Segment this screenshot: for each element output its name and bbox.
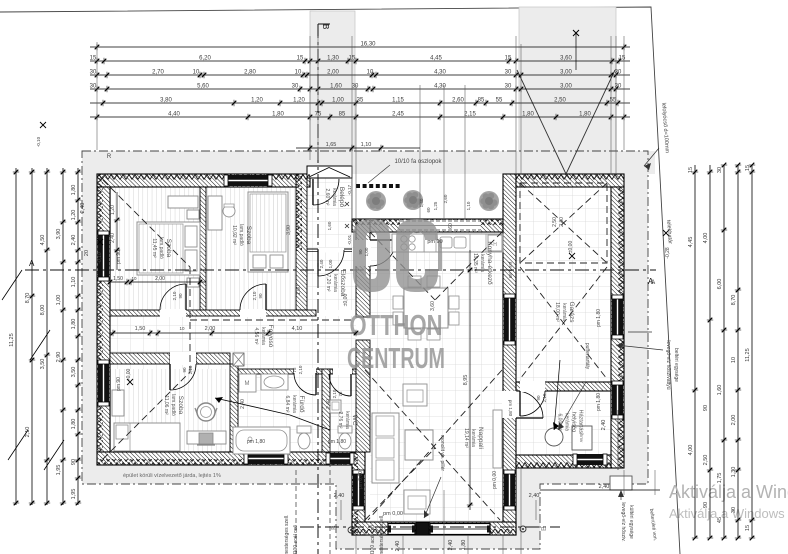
svg-text:2,40: 2,40 — [395, 541, 401, 552]
svg-text:10: 10 — [179, 326, 185, 331]
svg-text:3,90: 3,90 — [286, 225, 292, 235]
svg-text:1,60: 1,60 — [327, 221, 332, 230]
svg-text:10,92 m²: 10,92 m² — [231, 225, 237, 245]
svg-text:30: 30 — [505, 84, 512, 90]
svg-text:2,40: 2,40 — [110, 233, 116, 243]
svg-text:18,00 m²: 18,00 m² — [554, 302, 560, 322]
svg-text:pm 0,00: pm 0,00 — [492, 471, 498, 489]
svg-text:2,10: 2,10 — [298, 365, 303, 374]
svg-text:1,25: 1,25 — [433, 201, 438, 210]
svg-text:1,10: 1,10 — [71, 277, 77, 288]
svg-text:-0,10: -0,10 — [97, 252, 103, 264]
svg-text:2,40: 2,40 — [334, 493, 345, 499]
svg-text:4,30: 4,30 — [434, 84, 446, 90]
svg-text:2,10: 2,10 — [332, 389, 337, 398]
svg-text:4,30: 4,30 — [434, 70, 446, 76]
svg-text:3,60: 3,60 — [560, 56, 572, 62]
svg-text:90: 90 — [71, 459, 77, 465]
svg-text:3,90: 3,90 — [56, 229, 62, 240]
svg-text:lefolyócső d=100mm: lefolyócső d=100mm — [660, 102, 670, 153]
svg-text:2,10: 2,10 — [172, 291, 177, 300]
svg-text:30: 30 — [90, 84, 97, 90]
svg-text:±0,00: ±0,00 — [568, 241, 574, 254]
svg-text:1,00: 1,00 — [332, 98, 344, 104]
svg-text:1,20: 1,20 — [293, 98, 305, 104]
svg-text:90: 90 — [358, 249, 363, 255]
svg-text:pm 1,80: pm 1,80 — [328, 439, 346, 445]
svg-text:kerámia: kerámia — [470, 429, 476, 447]
svg-text:lam.padló: lam.padló — [170, 394, 176, 416]
svg-text:levegő-víz hősziv.: levegő-víz hősziv. — [620, 502, 626, 541]
svg-text:1,00: 1,00 — [364, 247, 369, 256]
svg-text:1,20: 1,20 — [251, 98, 263, 104]
svg-text:15: 15 — [349, 56, 356, 62]
svg-text:M: M — [245, 381, 250, 387]
svg-text:1,60: 1,60 — [296, 285, 302, 295]
svg-text:30: 30 — [90, 70, 97, 76]
svg-text:Belépő: Belépő — [338, 187, 345, 208]
svg-text:beltéri egysége: beltéri egysége — [673, 348, 679, 382]
svg-text:2,60: 2,60 — [452, 98, 464, 104]
svg-text:2,10: 2,10 — [25, 427, 31, 438]
svg-text:4,56 m²: 4,56 m² — [253, 328, 259, 345]
svg-text:30: 30 — [352, 84, 359, 90]
svg-text:30: 30 — [505, 70, 512, 76]
svg-text:75: 75 — [338, 391, 343, 397]
svg-text:55: 55 — [496, 98, 503, 104]
svg-text:3,00: 3,00 — [560, 84, 572, 90]
svg-text:11,06 m²: 11,06 m² — [163, 395, 169, 415]
svg-text:2,60: 2,60 — [443, 194, 448, 203]
svg-text:2,40: 2,40 — [319, 259, 324, 268]
svg-text:kerámia: kerámia — [344, 411, 350, 429]
svg-text:Nappali: Nappali — [477, 427, 484, 449]
svg-text:A: A — [651, 279, 656, 286]
svg-text:B: B — [331, 525, 338, 530]
svg-text:kerámia: kerámia — [561, 303, 567, 321]
svg-text:-0,10: -0,10 — [36, 136, 41, 147]
svg-text:helyiség: helyiség — [571, 412, 577, 432]
svg-text:35: 35 — [357, 98, 364, 104]
svg-text:1,00: 1,00 — [328, 259, 333, 268]
svg-text:2,40: 2,40 — [529, 493, 540, 499]
svg-text:2,00: 2,00 — [155, 276, 165, 282]
svg-text:pm 1,80: pm 1,80 — [596, 309, 602, 327]
svg-text:1,30: 1,30 — [731, 467, 737, 478]
svg-text:Háztartási: Háztartási — [578, 410, 584, 435]
svg-text:1,80: 1,80 — [461, 540, 467, 551]
svg-text:6,00: 6,00 — [717, 279, 723, 290]
svg-text:15: 15 — [505, 56, 512, 62]
svg-text:1,50: 1,50 — [135, 326, 146, 332]
svg-text:Szoba: Szoba — [245, 226, 252, 245]
svg-text:90: 90 — [258, 293, 263, 299]
svg-text:2,40: 2,40 — [326, 399, 332, 409]
svg-text:kerámia: kerámia — [331, 188, 337, 206]
svg-text:4,45: 4,45 — [430, 56, 442, 62]
svg-text:1,60: 1,60 — [330, 84, 342, 90]
svg-text:lam.padló: lam.padló — [238, 224, 244, 246]
svg-text:20: 20 — [84, 250, 90, 256]
svg-text:kerámia: kerámia — [479, 254, 485, 272]
svg-text:15: 15 — [619, 56, 626, 62]
svg-text:2,15: 2,15 — [464, 112, 476, 118]
svg-text:2,50: 2,50 — [703, 455, 709, 466]
svg-text:2,10: 2,10 — [542, 393, 547, 402]
svg-text:pm 1,80: pm 1,80 — [247, 439, 265, 445]
svg-text:4,00: 4,00 — [688, 445, 694, 456]
svg-text:30: 30 — [731, 507, 737, 513]
svg-text:1,20: 1,20 — [110, 205, 116, 215]
svg-text:CENTRUM: CENTRUM — [347, 343, 445, 375]
svg-text:6,20: 6,20 — [199, 56, 211, 62]
svg-text:4,50: 4,50 — [40, 235, 46, 246]
svg-text:11,45 m²: 11,45 m² — [151, 238, 157, 258]
svg-text:19,14 m²: 19,14 m² — [463, 428, 469, 448]
svg-text:1,80: 1,80 — [579, 112, 591, 118]
svg-text:Aktiválja a Windows rendszert: Aktiválja a Windows rendszert — [669, 506, 788, 521]
svg-text:2,40: 2,40 — [71, 235, 77, 246]
svg-text:3,60: 3,60 — [430, 301, 436, 311]
svg-text:1,60: 1,60 — [717, 385, 723, 396]
svg-text:1,00: 1,00 — [56, 295, 62, 306]
svg-text:85: 85 — [478, 98, 485, 104]
svg-text:10: 10 — [193, 70, 200, 76]
svg-text:pm 1,80: pm 1,80 — [596, 393, 602, 411]
svg-text:Szoba: Szoba — [177, 396, 184, 415]
svg-text:B: B — [541, 526, 548, 531]
svg-text:1,80: 1,80 — [71, 419, 77, 430]
svg-text:4,40: 4,40 — [168, 112, 180, 118]
svg-text:2,80: 2,80 — [244, 70, 256, 76]
svg-text:pm 0,00: pm 0,00 — [383, 511, 403, 517]
svg-text:90: 90 — [182, 367, 187, 373]
svg-text:2,00: 2,00 — [731, 415, 737, 426]
svg-text:11,25: 11,25 — [9, 333, 15, 346]
svg-text:4,45: 4,45 — [688, 237, 694, 248]
svg-text:2,40: 2,40 — [601, 420, 607, 431]
svg-text:WC: WC — [351, 415, 358, 426]
svg-text:pm 0,00: pm 0,00 — [358, 471, 364, 489]
svg-text:10: 10 — [731, 357, 737, 363]
svg-text:2,40: 2,40 — [80, 203, 86, 214]
svg-text:1,10: 1,10 — [361, 142, 372, 148]
svg-text:1,10: 1,10 — [466, 201, 471, 210]
svg-text:-0,28: -0,28 — [665, 247, 671, 259]
svg-text:85: 85 — [339, 112, 346, 118]
svg-text:Szoba: Szoba — [165, 239, 172, 258]
svg-text:3,00: 3,00 — [560, 70, 572, 76]
svg-text:puffertartály: puffertartály — [584, 343, 590, 370]
svg-text:15: 15 — [745, 525, 751, 531]
svg-text:10: 10 — [131, 276, 137, 281]
svg-text:1,65: 1,65 — [326, 142, 337, 148]
svg-text:pm 90: pm 90 — [427, 239, 442, 245]
svg-text:2,10: 2,10 — [188, 365, 193, 374]
svg-text:10: 10 — [367, 70, 374, 76]
svg-text:2,40: 2,40 — [559, 217, 565, 227]
svg-text:Fürdő: Fürdő — [298, 396, 305, 413]
svg-text:90: 90 — [703, 405, 709, 411]
svg-text:2,60 m²: 2,60 m² — [324, 189, 330, 206]
svg-text:8,70: 8,70 — [25, 293, 31, 304]
svg-text:Előszoba: Előszoba — [339, 270, 346, 297]
svg-text:15: 15 — [688, 167, 694, 173]
svg-text:7,20 m²: 7,20 m² — [325, 275, 331, 292]
svg-text:2,10: 2,10 — [252, 291, 257, 300]
svg-text:6,84 m²: 6,84 m² — [284, 396, 290, 413]
svg-text:mesterséges szell.: mesterséges szell. — [379, 515, 385, 554]
svg-text:2,50: 2,50 — [552, 217, 558, 227]
svg-text:75: 75 — [315, 112, 322, 118]
svg-text:75: 75 — [292, 367, 297, 373]
svg-text:lam.padló: lam.padló — [158, 237, 164, 259]
svg-text:1,80: 1,80 — [71, 319, 77, 330]
svg-text:4,10: 4,10 — [292, 326, 303, 332]
svg-text:hmv: hmv — [579, 434, 584, 443]
svg-text:-0,01: -0,01 — [347, 234, 352, 245]
svg-text:1,20: 1,20 — [71, 210, 77, 221]
svg-text:8,70: 8,70 — [731, 295, 737, 306]
svg-text:1,80: 1,80 — [71, 185, 77, 196]
svg-text:8,00: 8,00 — [40, 305, 46, 316]
svg-text:telekhatár: telekhatár — [665, 220, 673, 245]
svg-text:levegő-víz hőszivattyú: levegő-víz hőszivattyú — [665, 340, 671, 389]
svg-text:2,00: 2,00 — [327, 70, 339, 76]
svg-text:1,15: 1,15 — [392, 98, 404, 104]
svg-text:B: B — [321, 24, 330, 29]
svg-text:10: 10 — [295, 70, 302, 76]
svg-text:mesterséges szell.: mesterséges szell. — [284, 515, 290, 554]
svg-text:±0,00: ±0,00 — [343, 294, 349, 307]
svg-text:Aktiválja a Windows: Aktiválja a Windows — [669, 482, 788, 502]
svg-text:3,80: 3,80 — [160, 98, 172, 104]
svg-text:60: 60 — [448, 223, 454, 229]
svg-text:épület körüli vízelvezető járd: épület körüli vízelvezető járda, lejtés … — [123, 473, 221, 479]
svg-text:1,80: 1,80 — [522, 112, 534, 118]
svg-text:90: 90 — [536, 395, 541, 401]
svg-text:kültéri egysége: kültéri egysége — [628, 505, 634, 539]
svg-text:Garázs: Garázs — [568, 302, 575, 324]
svg-text:pm 1,80: pm 1,80 — [508, 262, 513, 279]
svg-text:1,75: 1,75 — [717, 473, 723, 484]
svg-text:8,95: 8,95 — [463, 375, 469, 386]
svg-text:2,45: 2,45 — [392, 112, 404, 118]
svg-text:1,80: 1,80 — [272, 112, 284, 118]
svg-text:15: 15 — [90, 56, 97, 62]
svg-text:16,30: 16,30 — [360, 42, 376, 48]
svg-text:2,70: 2,70 — [152, 70, 164, 76]
svg-text:90: 90 — [703, 502, 709, 508]
svg-text:60: 60 — [426, 207, 431, 213]
svg-text:belterületi von.: belterületi von. — [648, 508, 658, 541]
svg-text:30: 30 — [292, 84, 299, 90]
svg-text:3,50: 3,50 — [71, 367, 77, 378]
svg-text:pm 1,80: pm 1,80 — [508, 400, 513, 417]
svg-text:2,50: 2,50 — [554, 98, 566, 104]
svg-text:5,60: 5,60 — [197, 84, 209, 90]
svg-text:kerámia: kerámia — [260, 327, 266, 345]
svg-text:OTTHON: OTTHON — [350, 310, 443, 342]
svg-text:2,40: 2,40 — [599, 484, 610, 490]
svg-text:4,00: 4,00 — [703, 233, 709, 244]
svg-text:monolit vb. pillér: monolit vb. pillér — [439, 435, 445, 471]
svg-text:-0,17: -0,17 — [347, 184, 352, 195]
svg-text:2,40: 2,40 — [448, 540, 454, 551]
svg-text:1,50: 1,50 — [113, 276, 123, 282]
svg-text:3,50: 3,50 — [40, 359, 46, 370]
svg-text:Konyha-étkező: Konyha-étkező — [486, 241, 493, 285]
svg-text:10/10 fa oszlopok: 10/10 fa oszlopok — [394, 159, 442, 165]
svg-text:d100 acél cső: d100 acél cső — [370, 525, 376, 554]
svg-text:kerámia: kerámia — [291, 395, 297, 413]
svg-text:15: 15 — [745, 165, 751, 171]
svg-text:45: 45 — [717, 517, 723, 523]
svg-text:1,95: 1,95 — [56, 465, 62, 476]
svg-text:pm 90: pm 90 — [116, 377, 122, 391]
svg-text:1,40: 1,40 — [419, 198, 424, 207]
svg-text:90: 90 — [178, 293, 183, 299]
svg-text:15: 15 — [297, 56, 304, 62]
svg-text:2,76 m²: 2,76 m² — [337, 412, 343, 429]
svg-text:kerámia: kerámia — [332, 274, 338, 292]
svg-text:1,95: 1,95 — [71, 489, 77, 500]
svg-text:11,25: 11,25 — [745, 348, 751, 361]
svg-text:30: 30 — [717, 167, 723, 173]
svg-text:2,90: 2,90 — [56, 352, 62, 363]
svg-text:R: R — [107, 154, 112, 160]
svg-text:1,30: 1,30 — [327, 56, 339, 62]
